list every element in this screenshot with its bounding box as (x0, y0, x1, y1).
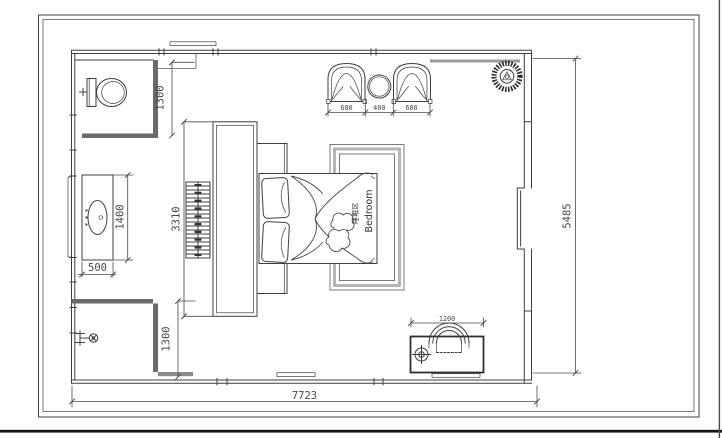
armchair-left (327, 64, 367, 104)
shower-threshold (72, 299, 154, 304)
dim-vanity-length: 1400 (113, 172, 133, 263)
bathroom-threshold (82, 134, 158, 139)
top-wall-strip (170, 42, 216, 46)
room-label-en: Bedroom (364, 190, 375, 233)
desk-baseboard (432, 374, 480, 378)
dim-vanity-depth: 500 (78, 262, 116, 277)
floor-threshold (277, 373, 315, 377)
bulkhead-line (158, 54, 196, 69)
wardrobe-cabinet (213, 122, 257, 316)
dim-text: 5485 (562, 203, 574, 228)
dim-text: 600 (340, 104, 352, 112)
lounge-set (327, 64, 433, 104)
dim-text: 600 (405, 104, 417, 112)
tea-table (368, 75, 391, 98)
toilet-icon (80, 79, 127, 107)
bathroom (75, 60, 158, 138)
dim-text: 1300 (155, 85, 167, 110)
partition-foot (158, 372, 193, 376)
room-label-cn: 睡眠区 (352, 202, 360, 224)
dim-text: 1300 (161, 326, 173, 351)
dim-text: 400 (373, 104, 385, 112)
armchair-right (392, 64, 432, 104)
dim-text: 1400 (115, 204, 127, 229)
plant-icon (494, 63, 520, 89)
dim-text: 3310 (171, 206, 183, 231)
shower-head-icon (76, 331, 98, 345)
pillow (261, 177, 289, 218)
dim-room-depth: 5485 (533, 56, 581, 376)
dim-text: 7723 (292, 390, 317, 402)
shower-partition-wall (153, 304, 158, 373)
radiator (186, 182, 210, 258)
floor-plan-canvas: 睡眠区 Bedroom (0, 0, 722, 438)
drawing-sheet: 睡眠区 Bedroom (0, 0, 722, 438)
dim-desk-width: 1200 (408, 315, 486, 327)
dim-text: 1200 (439, 315, 455, 323)
dim-shower-width: 1300 (161, 298, 196, 380)
dim-bathroom-width: 1300 (155, 60, 195, 139)
wall-pilaster (68, 177, 72, 257)
dim-text: 500 (88, 262, 107, 274)
shower-room (72, 299, 194, 376)
flower-decor-icon (326, 229, 350, 251)
dim-room-width: 7723 (69, 386, 540, 407)
pillow (261, 221, 289, 262)
bottom-edge-rule (0, 430, 722, 433)
bed: 睡眠区 Bedroom (257, 144, 377, 294)
desk-set (411, 323, 484, 377)
